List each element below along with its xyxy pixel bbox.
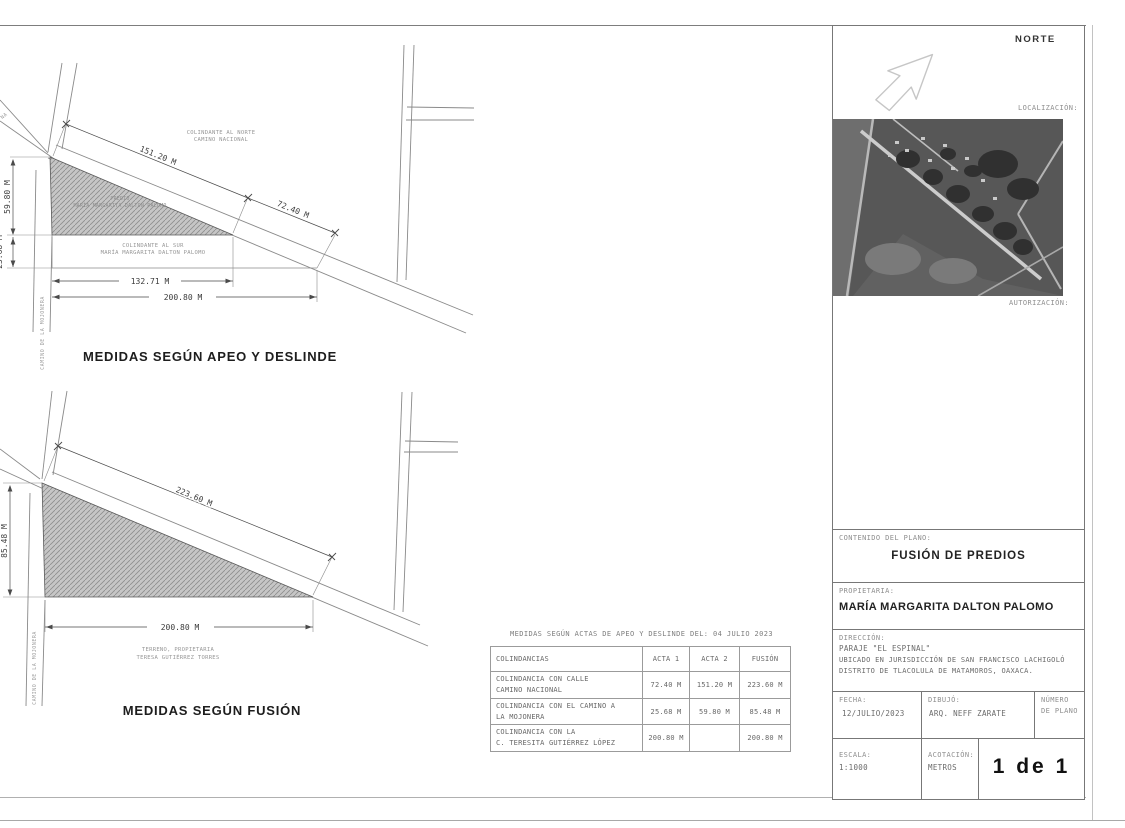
page-number-cell: 1 de 1: [978, 739, 1084, 799]
numero-label-line1: NÚMERO: [1041, 696, 1084, 704]
colindante-norte-line2: CAMINO NACIONAL: [194, 137, 249, 143]
table-row: COLINDANCIA CON CALLE CAMINO NACIONAL 72…: [491, 672, 791, 699]
dim-85: 85.48 M: [0, 524, 9, 558]
cell-fusion: 200.80 M: [740, 725, 791, 752]
road-label-mojonera-bottom: CAMINO DE LA MOJONERA: [32, 631, 38, 705]
direccion-section: DIRECCIÓN: PARAJE "EL ESPINAL" UBICADO E…: [833, 629, 1084, 691]
cell-acta1: 72.40 M: [643, 672, 690, 699]
fecha-dibujo-row: FECHA: 12/JULIO/2023 DIBUJÓ: ARQ. NEFF Z…: [833, 691, 1084, 738]
autorizacion-label: AUTORIZACIÓN:: [1009, 299, 1069, 307]
dim-200-top: 200.80 M: [164, 293, 203, 302]
parcel-label-line2: MARÍA MARGARITA DALTON PALOMO: [73, 201, 166, 209]
measures-table-caption: MEDIDAS SEGÚN ACTAS DE APEO Y DESLINDE D…: [510, 630, 794, 638]
north-label: NORTE: [1015, 34, 1056, 45]
row-label-line1: COLINDANCIA CON LA: [496, 727, 642, 738]
cell-acta2: 59.80 M: [690, 698, 740, 725]
road-label-mojonera-top: CAMINO DE LA MOJONERA: [40, 296, 46, 370]
row-label-line2: LA MOJONERA: [496, 712, 642, 723]
cell-fusion: 85.48 M: [740, 698, 791, 725]
localizacion-label: LOCALIZACIÓN:: [1018, 104, 1078, 112]
direccion-line1: PARAJE "EL ESPINAL": [839, 644, 1084, 653]
diagram-apeo-deslinde: 151.20 M 72.40 M 59.80 M 25.68 M 132.71 …: [0, 45, 474, 370]
header-colindancias: COLINDANCIAS: [491, 647, 643, 672]
colindante-norte-line1: COLINDANTE AL NORTE: [187, 130, 256, 136]
diagram-fusion: 223.60 M 85.48 M 200.80 M TERRENO, PROPI…: [0, 391, 458, 718]
measures-table-block: MEDIDAS SEGÚN ACTAS DE APEO Y DESLINDE D…: [490, 630, 794, 752]
fecha-cell: FECHA: 12/JULIO/2023: [833, 692, 921, 738]
table-row: COLINDANCIA CON EL CAMINO A LA MOJONERA …: [491, 698, 791, 725]
contenido-section: CONTENIDO DEL PLANO: FUSIÓN DE PREDIOS: [833, 529, 1084, 582]
dibujo-label: DIBUJÓ:: [928, 696, 1034, 704]
contenido-value: FUSIÓN DE PREDIOS: [833, 550, 1084, 562]
header-fusion: FUSIÓN: [740, 647, 791, 672]
dim-72: 72.40 M: [276, 199, 311, 220]
propietaria-section: PROPIETARIA: MARÍA MARGARITA DALTON PALO…: [833, 582, 1084, 629]
acotacion-label: ACOTACIÓN:: [928, 751, 978, 759]
colindante-sur-line2: MARÍA MARGARITA DALTON PALOMO: [101, 248, 206, 256]
row-label: COLINDANCIA CON LA C. TERESITA GUTIÉRREZ…: [491, 725, 643, 752]
propietaria-value: MARÍA MARGARITA DALTON PALOMO: [839, 601, 1084, 613]
header-acta2: ACTA 2: [690, 647, 740, 672]
cell-acta2: [690, 725, 740, 752]
dim-59: 59.80 M: [3, 180, 12, 214]
contenido-label: CONTENIDO DEL PLANO:: [833, 530, 1084, 542]
table-header-row: COLINDANCIAS ACTA 1 ACTA 2 FUSIÓN: [491, 647, 791, 672]
escala-label: ESCALA:: [839, 751, 921, 759]
title-block: NORTE LOCALIZACIÓN:: [832, 25, 1085, 800]
header-acta1: ACTA 1: [643, 647, 690, 672]
dibujo-cell: DIBUJÓ: ARQ. NEFF ZARATE: [921, 692, 1034, 738]
diagram-top-title: MEDIDAS SEGÚN APEO Y DESLINDE: [83, 349, 337, 364]
row-label-line1: COLINDANCIA CON EL CAMINO A: [496, 701, 642, 712]
dim-25: 25.68 M: [0, 235, 4, 269]
owner-label-line1: TERRENO, PROPIETARIA: [142, 647, 215, 653]
row-label: COLINDANCIA CON EL CAMINO A LA MOJONERA: [491, 698, 643, 725]
direccion-line3: DISTRITO DE TLACOLULA DE MATAMOROS, OAXA…: [839, 667, 1084, 675]
escala-cell: ESCALA: 1:1000: [833, 739, 921, 799]
parcel-label-line1: PREDIO: [110, 196, 129, 202]
plan-sheet: 151.20 M 72.40 M 59.80 M 25.68 M 132.71 …: [0, 0, 1125, 828]
row-label-line1: COLINDANCIA CON CALLE: [496, 674, 642, 685]
acotacion-cell: ACOTACIÓN: METROS: [921, 739, 978, 799]
direccion-line2: UBICADO EN JURISDICCIÓN DE SAN FRANCISCO…: [839, 656, 1084, 664]
cell-acta1: 25.68 M: [643, 698, 690, 725]
fecha-label: FECHA:: [839, 696, 921, 704]
direccion-label: DIRECCIÓN:: [833, 630, 1084, 642]
diagram-bottom-title: MEDIDAS SEGÚN FUSIÓN: [123, 703, 302, 718]
parcel-polygon-top: [50, 157, 233, 235]
parcel-polygon-bottom: [42, 483, 313, 597]
measures-table: COLINDANCIAS ACTA 1 ACTA 2 FUSIÓN COLIND…: [490, 646, 791, 752]
fecha-value: 12/JULIO/2023: [842, 709, 921, 718]
owner-label-line2: TERESA GUTIÉRREZ TORRES: [136, 653, 219, 661]
page-number-value: 1 de 1: [979, 755, 1084, 779]
dim-200-bottom: 200.80 M: [161, 623, 200, 632]
dim-223: 223.60 M: [174, 485, 213, 508]
numero-label-line2: DE PLANO: [1041, 707, 1084, 715]
row-label-line2: C. TERESITA GUTIÉRREZ LÓPEZ: [496, 738, 642, 749]
north-arrow-icon: [855, 30, 963, 126]
cell-acta1: 200.80 M: [643, 725, 690, 752]
cell-fusion: 223.60 M: [740, 672, 791, 699]
location-aerial-photo: [833, 119, 1063, 296]
escala-acotacion-row: ESCALA: 1:1000 ACOTACIÓN: METROS 1 de 1: [833, 738, 1084, 799]
dim-132: 132.71 M: [131, 277, 170, 286]
road-label-edge-fragment: NA: [0, 112, 9, 121]
propietaria-label: PROPIETARIA:: [833, 583, 1084, 595]
colindante-sur-line1: COLINDANTE AL SUR: [122, 243, 184, 249]
row-label: COLINDANCIA CON CALLE CAMINO NACIONAL: [491, 672, 643, 699]
acotacion-value: METROS: [928, 763, 978, 772]
escala-value: 1:1000: [839, 763, 921, 772]
table-row: COLINDANCIA CON LA C. TERESITA GUTIÉRREZ…: [491, 725, 791, 752]
numero-plano-cell: NÚMERO DE PLANO: [1034, 692, 1084, 738]
row-label-line2: CAMINO NACIONAL: [496, 685, 642, 696]
cell-acta2: 151.20 M: [690, 672, 740, 699]
dibujo-value: ARQ. NEFF ZARATE: [929, 709, 1034, 718]
